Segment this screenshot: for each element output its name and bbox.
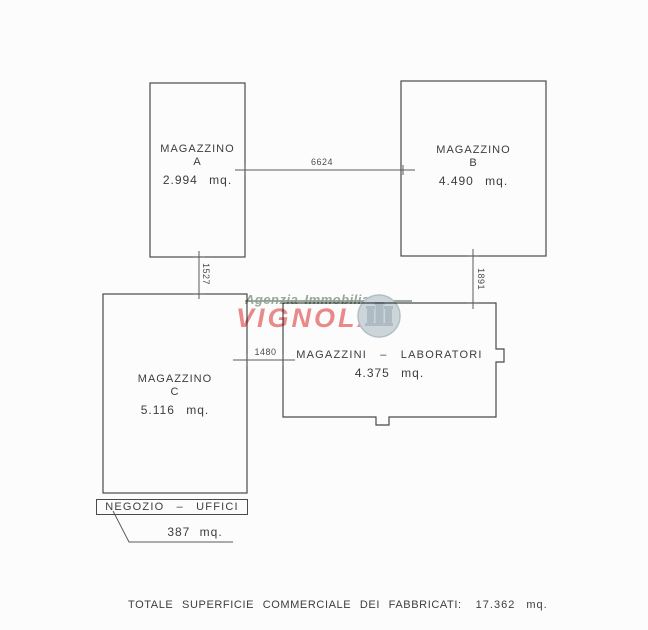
building-letter: C xyxy=(103,386,247,399)
building-name: MAGAZZINO xyxy=(401,144,546,157)
total-surface-line: TOTALE SUPERFICIE COMMERCIALE DEI FABBRI… xyxy=(128,599,548,611)
shop-label: NEGOZIO – UFFICI xyxy=(105,501,239,513)
building-area: 2.994 mq. xyxy=(150,173,245,187)
building-letter: A xyxy=(150,156,245,169)
dimension-c-lab: 1480 xyxy=(238,347,293,357)
magazzino-c-label: MAGAZZINO C 5.116 mq. xyxy=(103,373,247,417)
building-letter: B xyxy=(401,157,546,170)
floor-plan-page: MAGAZZINO A 2.994 mq. MAGAZZINO B 4.490 … xyxy=(0,0,648,630)
total-value: 17.362 mq. xyxy=(476,599,548,611)
magazzino-a-label: MAGAZZINO A 2.994 mq. xyxy=(150,143,245,187)
shop-area-value: 387 mq. xyxy=(145,525,245,539)
building-area: 4.490 mq. xyxy=(401,174,546,188)
laboratori-label: MAGAZZINI – LABORATORI 4.375 mq. xyxy=(283,349,496,380)
dimension-a-c: 1527 xyxy=(201,263,211,285)
dimension-a-b: 6624 xyxy=(292,157,352,167)
magazzino-b-label: MAGAZZINO B 4.490 mq. xyxy=(401,144,546,188)
building-area: 5.116 mq. xyxy=(103,403,247,417)
building-name: MAGAZZINO xyxy=(150,143,245,156)
negozio-uffici-box: NEGOZIO – UFFICI xyxy=(96,499,248,515)
building-area: 4.375 mq. xyxy=(283,366,496,380)
building-name: MAGAZZINI – LABORATORI xyxy=(283,349,496,362)
total-label: TOTALE SUPERFICIE COMMERCIALE DEI FABBRI… xyxy=(128,599,462,611)
dimension-b-lab: 1891 xyxy=(476,268,486,290)
plan-line-drawing xyxy=(0,0,648,630)
building-name: MAGAZZINO xyxy=(103,373,247,386)
